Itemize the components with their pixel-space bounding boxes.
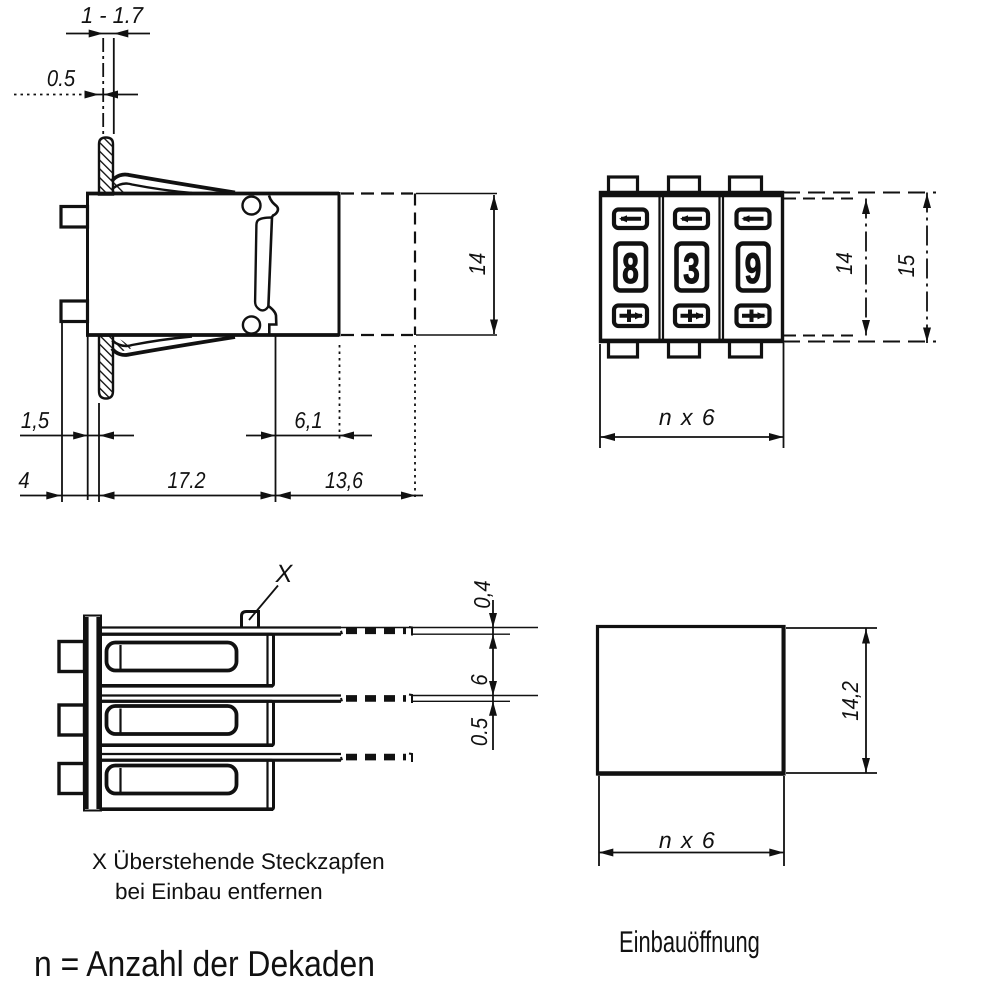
svg-text:14,2: 14,2 (837, 681, 863, 721)
svg-text:n x 6: n x 6 (659, 404, 716, 430)
svg-text:X: X (275, 560, 294, 588)
svg-text:n = Anzahl der Dekaden: n = Anzahl der Dekaden (34, 943, 375, 984)
svg-text:6,1: 6,1 (294, 407, 322, 433)
svg-text:X Überstehende Steckzapfen: X Überstehende Steckzapfen (92, 849, 385, 874)
svg-text:14: 14 (831, 252, 857, 275)
svg-text:17.2: 17.2 (167, 467, 205, 493)
svg-text:Einbauöffnung: Einbauöffnung (619, 926, 760, 959)
svg-text:6: 6 (466, 674, 492, 685)
svg-text:9: 9 (745, 245, 762, 293)
svg-text:0.5: 0.5 (47, 65, 75, 91)
svg-text:0.5: 0.5 (466, 718, 492, 746)
svg-text:bei Einbau entfernen: bei Einbau entfernen (115, 879, 323, 904)
svg-text:4: 4 (18, 467, 29, 493)
svg-text:n x 6: n x 6 (659, 827, 716, 853)
svg-text:0,4: 0,4 (469, 580, 495, 608)
svg-text:8: 8 (622, 245, 639, 293)
svg-text:1 - 1.7: 1 - 1.7 (81, 2, 144, 28)
svg-text:13,6: 13,6 (325, 467, 363, 493)
svg-text:15: 15 (893, 255, 919, 278)
svg-text:14: 14 (464, 253, 490, 276)
svg-text:3: 3 (683, 245, 700, 293)
svg-text:1,5: 1,5 (21, 407, 49, 433)
